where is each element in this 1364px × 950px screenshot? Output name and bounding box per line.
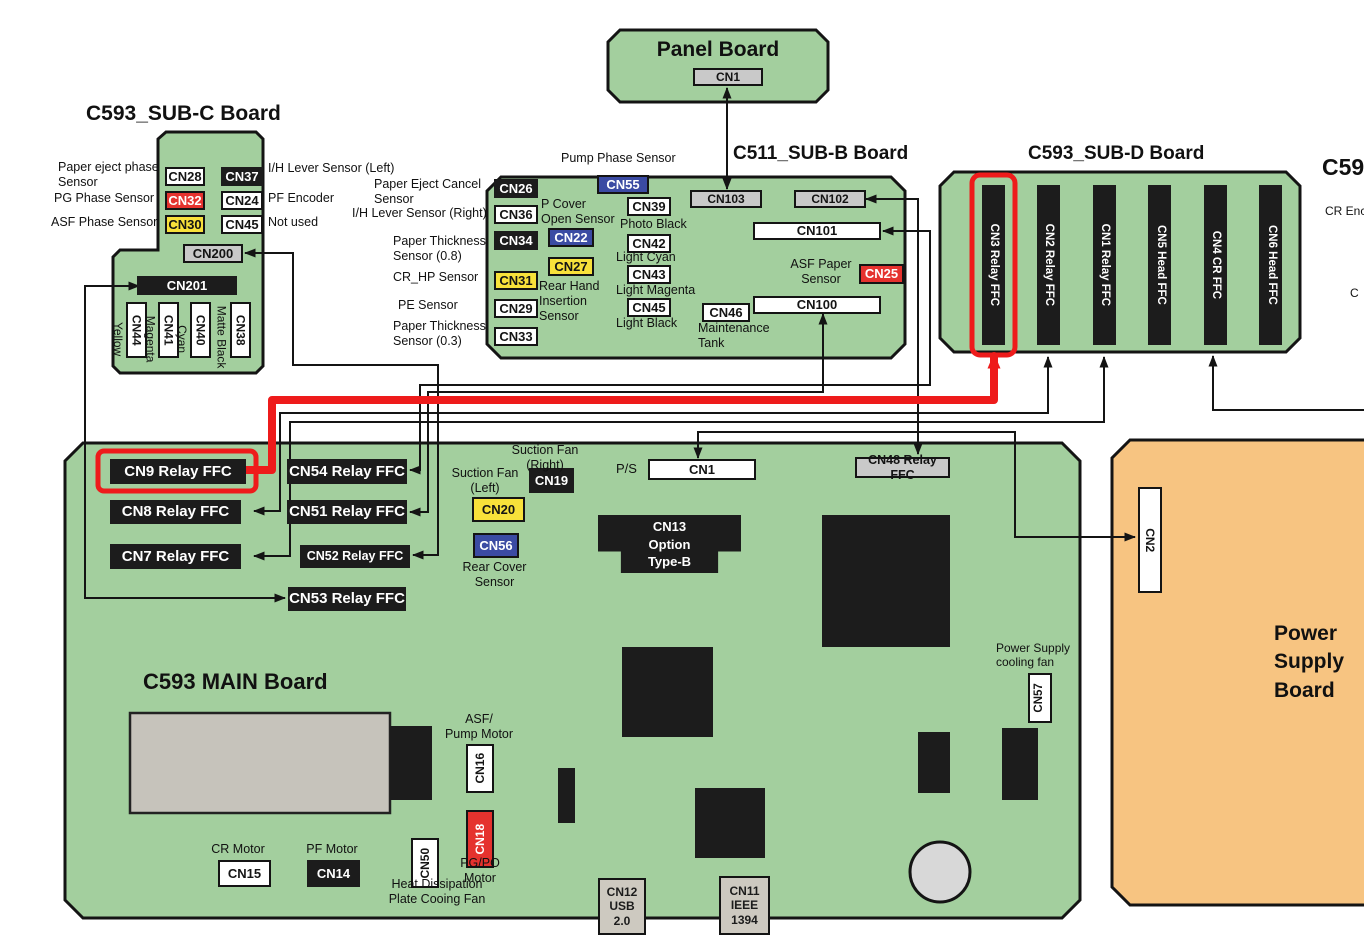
heat-sink-block xyxy=(390,726,432,800)
connector-label: CN9 Relay FFC xyxy=(124,463,232,481)
connector-label: CN2 xyxy=(1143,528,1157,552)
connector-label: CN26 xyxy=(499,181,532,197)
connector-label: CN41 xyxy=(161,315,175,346)
label-cyan: Cyan xyxy=(175,302,189,376)
connector-cn11-ieee-1394: CN11 IEEE 1394 xyxy=(719,876,770,935)
label-cr-enc: CR Enc xyxy=(1325,204,1364,218)
label-heat-dissipation-plate-cooing-fa: Heat Dissipation Plate Cooing Fan xyxy=(376,877,498,907)
label-not-used: Not used xyxy=(268,215,348,230)
connector-cn43: CN43 xyxy=(627,265,671,284)
connector-label: CN1 xyxy=(689,462,715,478)
ic-chip xyxy=(558,768,575,823)
label-i-h-lever-sensor-left: I/H Lever Sensor (Left) xyxy=(268,161,403,176)
diagram-stage: Panel Board C593_SUB-C Board C511_SUB-B … xyxy=(0,0,1364,950)
connector-label: CN50 xyxy=(418,848,432,879)
connector-cn46: CN46 xyxy=(702,303,750,322)
connector-cn6-head-ffc: CN6 Head FFC xyxy=(1259,185,1282,345)
connector-cn2-relay-ffc: CN2 Relay FFC xyxy=(1037,185,1060,345)
label-rear-hand-insertion-sensor: Rear Hand Insertion Sensor xyxy=(539,279,614,323)
connector-cn29: CN29 xyxy=(494,299,538,318)
connector-label: CN24 xyxy=(225,193,258,209)
connector-label: CN4 CR FFC xyxy=(1209,231,1223,299)
connector-cn45: CN45 xyxy=(221,215,263,234)
label-pe-sensor: PE Sensor xyxy=(398,298,468,313)
label-light-magenta: Light Magenta xyxy=(616,283,711,298)
ic-chip xyxy=(1002,728,1038,800)
connector-cn1: CN1 xyxy=(648,459,756,480)
connector-cn7-relay-ffc: CN7 Relay FFC xyxy=(110,544,241,569)
label-pump-phase-sensor: Pump Phase Sensor xyxy=(561,151,701,166)
connector-cn48-relay-ffc: CN48 Relay FFC xyxy=(855,457,950,478)
label-pf-encoder: PF Encoder xyxy=(268,191,358,206)
cutoff-board-title: C59 xyxy=(1322,152,1364,183)
connector-label: CN20 xyxy=(482,502,515,518)
label-pf-motor: PF Motor xyxy=(300,842,364,857)
connector-label: CN37 xyxy=(225,169,258,185)
label-maintenance-tank: Maintenance Tank xyxy=(698,321,788,351)
connector-label: CN11 IEEE 1394 xyxy=(729,884,759,927)
heat-sink-plate xyxy=(130,713,390,813)
label-asf-paper-sensor: ASF Paper Sensor xyxy=(789,257,853,287)
connector-label: CN51 Relay FFC xyxy=(289,503,405,521)
label-asf-pump-motor: ASF/ Pump Motor xyxy=(438,712,520,742)
connector-label: CN32 xyxy=(168,193,201,209)
connector-cn25: CN25 xyxy=(859,264,904,284)
connector-label: CN16 xyxy=(473,753,487,784)
connector-label: CN12 USB 2.0 xyxy=(607,885,638,928)
label-suction-fan-left: Suction Fan (Left) xyxy=(448,466,522,496)
connector-label: CN27 xyxy=(554,259,587,275)
connector-cn45: CN45 xyxy=(627,298,671,317)
connector-cn15: CN15 xyxy=(218,860,271,887)
connector-cn22: CN22 xyxy=(548,228,594,247)
connector-label: CN34 xyxy=(499,233,532,249)
connector-cn51-relay-ffc: CN51 Relay FFC xyxy=(287,500,407,524)
connector-cn31: CN31 xyxy=(494,271,538,290)
connector-label: CN201 xyxy=(167,278,207,294)
label-light-cyan: Light Cyan xyxy=(616,250,691,265)
connector-cn101: CN101 xyxy=(753,222,881,240)
connector-cn32: CN32 xyxy=(165,191,205,210)
label-cr-hp-sensor: CR_HP Sensor xyxy=(393,270,488,285)
label-p-s: P/S xyxy=(616,461,646,476)
connector-cn1: CN1 xyxy=(693,68,763,86)
connector-cn12-usb-2-0: CN12 USB 2.0 xyxy=(598,878,646,935)
ic-chip xyxy=(695,788,765,858)
panel-board-title: Panel Board xyxy=(608,36,828,64)
connector-cn37: CN37 xyxy=(221,167,263,186)
connector-cn4-cr-ffc: CN4 CR FFC xyxy=(1204,185,1227,345)
connector-label: CN22 xyxy=(554,230,587,246)
connector-label: CN13 Option Type-B xyxy=(648,518,691,571)
connector-label: CN25 xyxy=(865,266,898,282)
connector-cn14: CN14 xyxy=(307,860,360,887)
connector-label: CN5 Head FFC xyxy=(1153,225,1167,305)
connector-cn38: CN38 xyxy=(230,302,251,358)
connector-cn27: CN27 xyxy=(548,257,594,276)
connector-cn2: CN2 xyxy=(1138,487,1162,593)
connector-cn9-relay-ffc: CN9 Relay FFC xyxy=(110,459,246,484)
connector-label: CN3 Relay FFC xyxy=(987,224,1001,306)
connector-cn34: CN34 xyxy=(494,231,538,250)
connector-label: CN200 xyxy=(193,246,233,262)
label-yellow: Yellow xyxy=(111,300,125,378)
label-rear-cover-sensor: Rear Cover Sensor xyxy=(452,560,537,590)
label-i-h-lever-sensor-right: I/H Lever Sensor (Right) xyxy=(352,206,489,221)
label-light-black: Light Black xyxy=(616,316,691,331)
sub-d-board-title: C593_SUB-D Board xyxy=(1028,141,1278,167)
connector-cn33: CN33 xyxy=(494,327,538,346)
label-pg-phase-sensor: PG Phase Sensor xyxy=(54,191,164,206)
main-board-title: C593 MAIN Board xyxy=(143,667,433,697)
connector-cn20: CN20 xyxy=(472,497,525,522)
connector-cn55: CN55 xyxy=(597,175,649,194)
connector-label: CN14 xyxy=(317,866,350,882)
connector-cn200: CN200 xyxy=(183,244,243,263)
ic-chip xyxy=(622,647,713,737)
connector-label: CN7 Relay FFC xyxy=(122,548,230,566)
connector-label: CN6 Head FFC xyxy=(1264,225,1278,305)
connector-label: CN103 xyxy=(707,192,744,206)
connector-label: CN39 xyxy=(632,199,665,215)
ic-chip xyxy=(918,732,950,793)
connector-cn57: CN57 xyxy=(1028,673,1052,723)
connector-cn26: CN26 xyxy=(494,179,538,198)
connector-label: CN28 xyxy=(168,169,201,185)
connector-label: CN101 xyxy=(797,223,837,239)
connector-label: CN36 xyxy=(499,207,532,223)
label-paper-eject-phase-sensor: Paper eject phase Sensor xyxy=(58,160,163,190)
connector-label: CN100 xyxy=(797,297,837,313)
connector-cn8-relay-ffc: CN8 Relay FFC xyxy=(110,500,241,524)
connector-label: CN46 xyxy=(709,305,742,321)
connector-label: CN43 xyxy=(632,267,665,283)
connector-label: CN53 Relay FFC xyxy=(289,590,405,608)
connector-label: CN56 xyxy=(479,538,512,554)
label-cr-motor: CR Motor xyxy=(206,842,270,857)
label-p-cover-open-sensor: P Cover Open Sensor xyxy=(541,197,621,227)
label-paper-thickness-sensor-0-3: Paper Thickness Sensor (0.3) xyxy=(393,319,493,349)
connector-label: CN52 Relay FFC xyxy=(307,549,404,564)
psu-board-title: Power Supply Board xyxy=(1274,620,1364,705)
label-photo-black: Photo Black xyxy=(620,217,700,232)
connector-label: CN30 xyxy=(168,217,201,233)
connector-label: CN33 xyxy=(499,329,532,345)
connector-cn36: CN36 xyxy=(494,205,538,224)
label-paper-thickness-sensor-0-8: Paper Thickness Sensor (0.8) xyxy=(393,234,493,264)
connector-label: CN38 xyxy=(233,315,247,346)
connector-cn103: CN103 xyxy=(690,190,762,208)
connector-label: CN44 xyxy=(129,315,143,346)
wire-cn4-cr-ffc xyxy=(1213,356,1364,410)
sub-c-board-title: C593_SUB-C Board xyxy=(86,100,376,128)
connector-cn39: CN39 xyxy=(627,197,671,216)
sub-b-board-title: C511_SUB-B Board xyxy=(733,141,973,167)
connector-cn30: CN30 xyxy=(165,215,205,234)
connector-cn16: CN16 xyxy=(466,744,494,793)
connector-cn53-relay-ffc: CN53 Relay FFC xyxy=(288,587,406,611)
label-power-supply-cooling-fan: Power Supply cooling fan xyxy=(996,641,1084,669)
connector-label: CN55 xyxy=(606,177,639,193)
connector-label: CN48 Relay FFC xyxy=(857,453,948,483)
connector-cn56: CN56 xyxy=(473,533,519,558)
connector-label: CN31 xyxy=(499,273,532,289)
connector-cn5-head-ffc: CN5 Head FFC xyxy=(1148,185,1171,345)
connector-cn24: CN24 xyxy=(221,191,263,210)
label-c: C xyxy=(1350,286,1364,300)
connector-label: CN18 xyxy=(473,824,487,855)
connector-label: CN29 xyxy=(499,301,532,317)
connector-label: CN19 xyxy=(535,473,568,489)
connector-cn52-relay-ffc: CN52 Relay FFC xyxy=(300,545,410,568)
connector-label: CN1 xyxy=(716,70,740,84)
connector-cn54-relay-ffc: CN54 Relay FFC xyxy=(287,459,407,484)
buzzer-circle xyxy=(910,842,970,902)
connector-cn3-relay-ffc: CN3 Relay FFC xyxy=(982,185,1005,345)
connector-cn1-relay-ffc: CN1 Relay FFC xyxy=(1093,185,1116,345)
label-magenta: Magenta xyxy=(143,298,157,380)
connector-label: CN54 Relay FFC xyxy=(289,463,405,481)
ic-chip xyxy=(822,515,950,647)
connector-label: CN8 Relay FFC xyxy=(122,503,230,521)
label-matte-black: Matte Black xyxy=(214,292,228,382)
connector-label: CN57 xyxy=(1033,683,1047,712)
label-asf-phase-sensor: ASF Phase Sensor xyxy=(51,215,166,230)
connector-label: CN45 xyxy=(225,217,258,233)
connector-cn28: CN28 xyxy=(165,167,205,186)
connector-label: CN15 xyxy=(228,866,261,882)
connector-label: CN40 xyxy=(193,315,207,346)
connector-cn100: CN100 xyxy=(753,296,881,314)
connector-cn102: CN102 xyxy=(794,190,866,208)
connector-label: CN42 xyxy=(632,236,665,252)
label-paper-eject-cancel-sensor: Paper Eject Cancel Sensor xyxy=(374,177,494,207)
connector-label: CN1 Relay FFC xyxy=(1098,224,1112,306)
connector-label: CN45 xyxy=(632,300,665,316)
connector-label: CN102 xyxy=(811,192,848,206)
connector-label: CN2 Relay FFC xyxy=(1042,224,1056,306)
connector-cn40: CN40 xyxy=(190,302,211,358)
